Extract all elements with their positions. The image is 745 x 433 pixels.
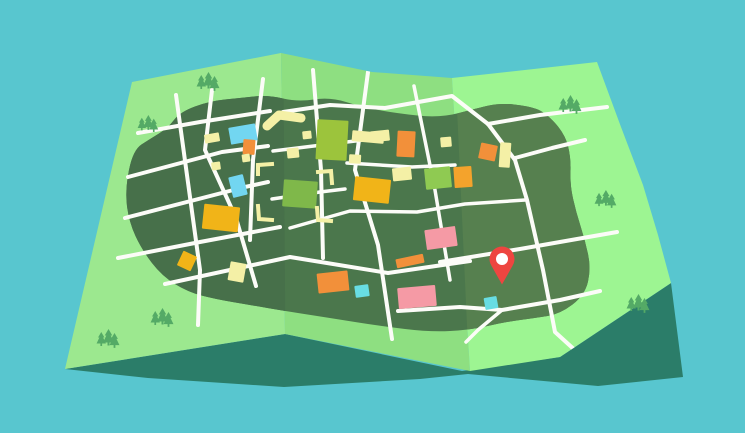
block-orange — [317, 270, 350, 293]
block-pale — [241, 153, 250, 162]
block-pink — [397, 285, 437, 309]
block-lime — [424, 166, 452, 190]
folded-map-illustration — [0, 0, 745, 433]
block-gold — [353, 176, 391, 204]
block-pink — [424, 226, 457, 250]
block-orange — [396, 131, 415, 158]
block-orange — [242, 139, 255, 155]
block-pale — [499, 142, 512, 168]
block-green — [282, 179, 318, 208]
block-gold — [453, 166, 472, 188]
block-pale — [349, 154, 361, 164]
block-pale — [287, 147, 300, 158]
block-gold — [202, 204, 240, 233]
block-cyan — [354, 284, 370, 298]
block-pale — [440, 137, 452, 148]
pin-inner-dot — [496, 253, 508, 265]
block-pale — [302, 131, 312, 140]
block-pale — [227, 261, 246, 282]
block-cyan — [484, 296, 499, 310]
block-pale — [392, 167, 412, 182]
block-pale — [370, 130, 390, 143]
map-scene — [0, 0, 745, 433]
block-pale — [211, 161, 221, 170]
block-lime — [315, 119, 348, 161]
